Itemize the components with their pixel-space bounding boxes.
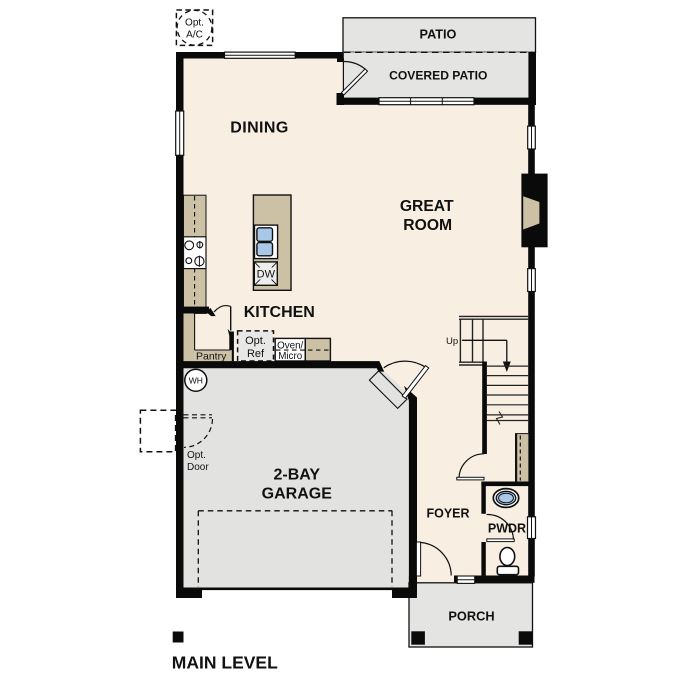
svg-text:GREAT: GREAT — [400, 198, 454, 215]
svg-text:Up: Up — [446, 336, 458, 347]
svg-text:Door: Door — [187, 462, 209, 473]
svg-text:Ref: Ref — [247, 348, 265, 360]
svg-text:ROOM: ROOM — [403, 217, 452, 234]
svg-text:PATIO: PATIO — [420, 28, 457, 42]
svg-text:DINING: DINING — [230, 120, 288, 137]
svg-text:Opt.: Opt. — [187, 450, 206, 461]
svg-text:Micro: Micro — [278, 351, 302, 362]
svg-text:GARAGE: GARAGE — [262, 486, 333, 503]
svg-text:FOYER: FOYER — [426, 506, 469, 520]
svg-text:2-BAY: 2-BAY — [274, 467, 321, 484]
svg-text:COVERED PATIO: COVERED PATIO — [389, 68, 487, 82]
svg-text:DW: DW — [257, 269, 276, 281]
svg-text:A/C: A/C — [186, 30, 203, 41]
svg-text:KITCHEN: KITCHEN — [244, 304, 315, 321]
svg-text:Pantry: Pantry — [196, 351, 227, 363]
svg-text:PORCH: PORCH — [448, 608, 494, 623]
svg-text:WH: WH — [189, 376, 203, 386]
svg-text:Opt.: Opt. — [185, 18, 204, 29]
svg-text:Opt.: Opt. — [245, 335, 266, 347]
svg-text:MAIN LEVEL: MAIN LEVEL — [172, 653, 278, 673]
svg-text:PWDR: PWDR — [488, 522, 526, 536]
svg-text:Oven/: Oven/ — [277, 340, 303, 351]
